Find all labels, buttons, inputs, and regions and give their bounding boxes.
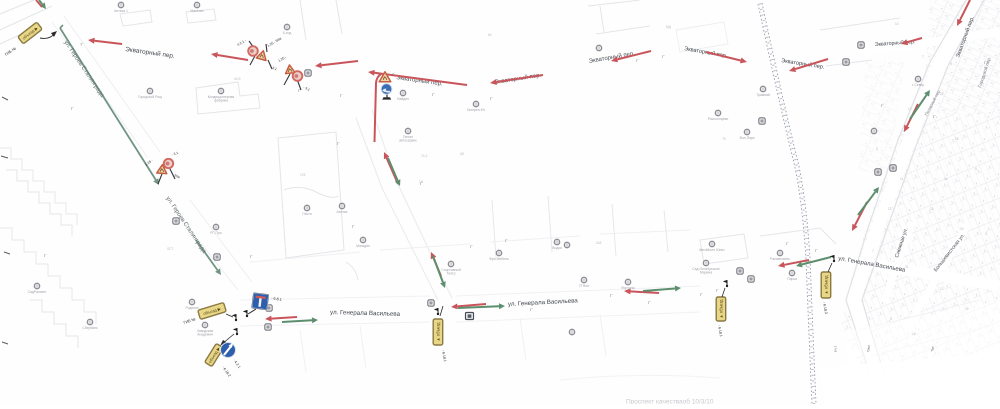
svg-text:МД: МД (666, 25, 672, 29)
svg-text:44-б: 44-б (234, 77, 241, 81)
svg-text:Γ´: Γ´ (250, 255, 253, 259)
svg-text:Γ´: Γ´ (881, 104, 884, 108)
svg-text:Γ´: Γ´ (662, 55, 665, 59)
svg-text:3: 3 (985, 232, 987, 236)
svg-text:СадРассвет: СадРассвет (28, 290, 47, 294)
svg-text:Парка: Парка (787, 277, 797, 281)
svg-text:АБ: АБ (460, 152, 464, 156)
svg-text:76: 76 (722, 137, 726, 141)
svg-text:22: 22 (888, 207, 892, 211)
svg-text:Γ´: Γ´ (340, 94, 343, 98)
svg-text:2а: 2а (944, 177, 948, 181)
svg-text:Ателье: Ателье (336, 210, 347, 214)
svg-text:Γ´: Γ´ (933, 115, 936, 119)
svg-text:Галерея Юг: Галерея Юг (467, 108, 486, 112)
svg-text:Вол-Парк: Вол-Парк (740, 136, 755, 140)
svg-text:Γ´: Γ´ (815, 249, 818, 253)
svg-text:Водок: Водок (552, 246, 562, 250)
svg-text:7: 7 (922, 55, 924, 59)
svg-text:ЛСТ: ЛСТ (167, 247, 173, 251)
svg-text:Магадан: Магадан (356, 244, 370, 248)
svg-text:5: 5 (876, 147, 878, 151)
svg-text:Γ´: Γ´ (984, 61, 987, 65)
svg-text:11: 11 (900, 177, 904, 181)
svg-text:Найден: Найден (397, 97, 409, 101)
svg-text:178: 178 (300, 173, 306, 177)
svg-text:7Н: 7Н (419, 180, 424, 184)
svg-text:Рассветаево: Рассветаево (770, 257, 790, 261)
svg-text:Γ´: Γ´ (470, 245, 473, 249)
svg-text:24: 24 (960, 227, 964, 231)
svg-text:15: 15 (930, 207, 934, 211)
svg-text:Γ´: Γ´ (44, 254, 47, 258)
svg-text:31: 31 (905, 265, 909, 269)
svg-text:▲ объезд: ▲ объезд (718, 299, 723, 319)
svg-text:РГ-Про: РГ-Про (210, 231, 222, 235)
svg-text:64: 64 (488, 33, 492, 37)
svg-text:АвтоМолл Юнит: АвтоМолл Юнит (699, 248, 725, 252)
svg-text:16: 16 (912, 332, 916, 336)
svg-text:Трамвай: Трамвай (756, 93, 770, 97)
svg-text:Γ´: Γ´ (337, 142, 340, 146)
svg-text:Γ´: Γ´ (700, 293, 703, 297)
svg-text:Γ´: Γ´ (352, 225, 355, 229)
svg-text:29: 29 (965, 307, 969, 311)
svg-text:г. Север: г. Север (912, 83, 925, 87)
svg-text:Γ´: Γ´ (530, 308, 533, 312)
svg-text:Аптека 1: Аптека 1 (114, 9, 128, 13)
svg-text:218: 218 (596, 241, 602, 245)
svg-text:Γ´: Γ´ (490, 97, 493, 101)
svg-text:Городской Рощ: Городской Рощ (138, 95, 162, 99)
svg-text:74-2: 74-2 (421, 154, 428, 158)
svg-text:Рассолнцево: Рассолнцево (708, 117, 729, 121)
svg-text:7: 7 (872, 249, 874, 253)
svg-text:Γ´: Γ´ (432, 93, 435, 97)
svg-text:Γ´: Γ´ (610, 294, 614, 298)
svg-text:8: 8 (975, 167, 977, 171)
svg-text:Магазин: Магазин (190, 9, 203, 13)
svg-text:Почта: Почта (302, 212, 312, 216)
svg-text:Γ´: Γ´ (786, 242, 789, 246)
svg-text:4: 4 (950, 62, 952, 66)
svg-text:Марина: Марина (700, 271, 712, 275)
svg-text:▲ объезд: ▲ объезд (435, 322, 440, 342)
svg-text:Γ´: Γ´ (71, 107, 74, 111)
svg-text:Γ´: Γ´ (648, 301, 651, 305)
svg-text:ТГФон: ТГФон (579, 284, 589, 288)
svg-text:14: 14 (895, 22, 899, 26)
svg-text:18: 18 (955, 137, 959, 141)
svg-text:Фри-Мебель: Фри-Мебель (489, 257, 509, 261)
svg-text:Сбербанк: Сбербанк (82, 326, 98, 330)
svg-text:12: 12 (908, 107, 912, 111)
svg-text:21: 21 (940, 92, 944, 96)
svg-text:фабрика: фабрика (214, 99, 228, 103)
svg-text:12: 12 (940, 287, 944, 291)
svg-text:автосервис: автосервис (399, 139, 417, 143)
svg-text:Родинки: Родинки (185, 306, 198, 310)
svg-text:▲ объезд: ▲ объезд (823, 275, 828, 295)
svg-text:Проспект качестваоб 10/3/10: Проспект качестваоб 10/3/10 (626, 398, 714, 405)
svg-text:Γ´: Γ´ (505, 239, 508, 243)
svg-text:Γ´: Γ´ (716, 289, 719, 293)
svg-text:Фортуны: Фортуны (621, 286, 635, 290)
svg-text:Театр: Театр (446, 272, 455, 276)
svg-text:Γ´: Γ´ (636, 59, 639, 63)
svg-text:5-ход: 5-ход (283, 31, 291, 35)
svg-text:Академия: Академия (197, 333, 213, 337)
svg-text:9: 9 (890, 317, 892, 321)
